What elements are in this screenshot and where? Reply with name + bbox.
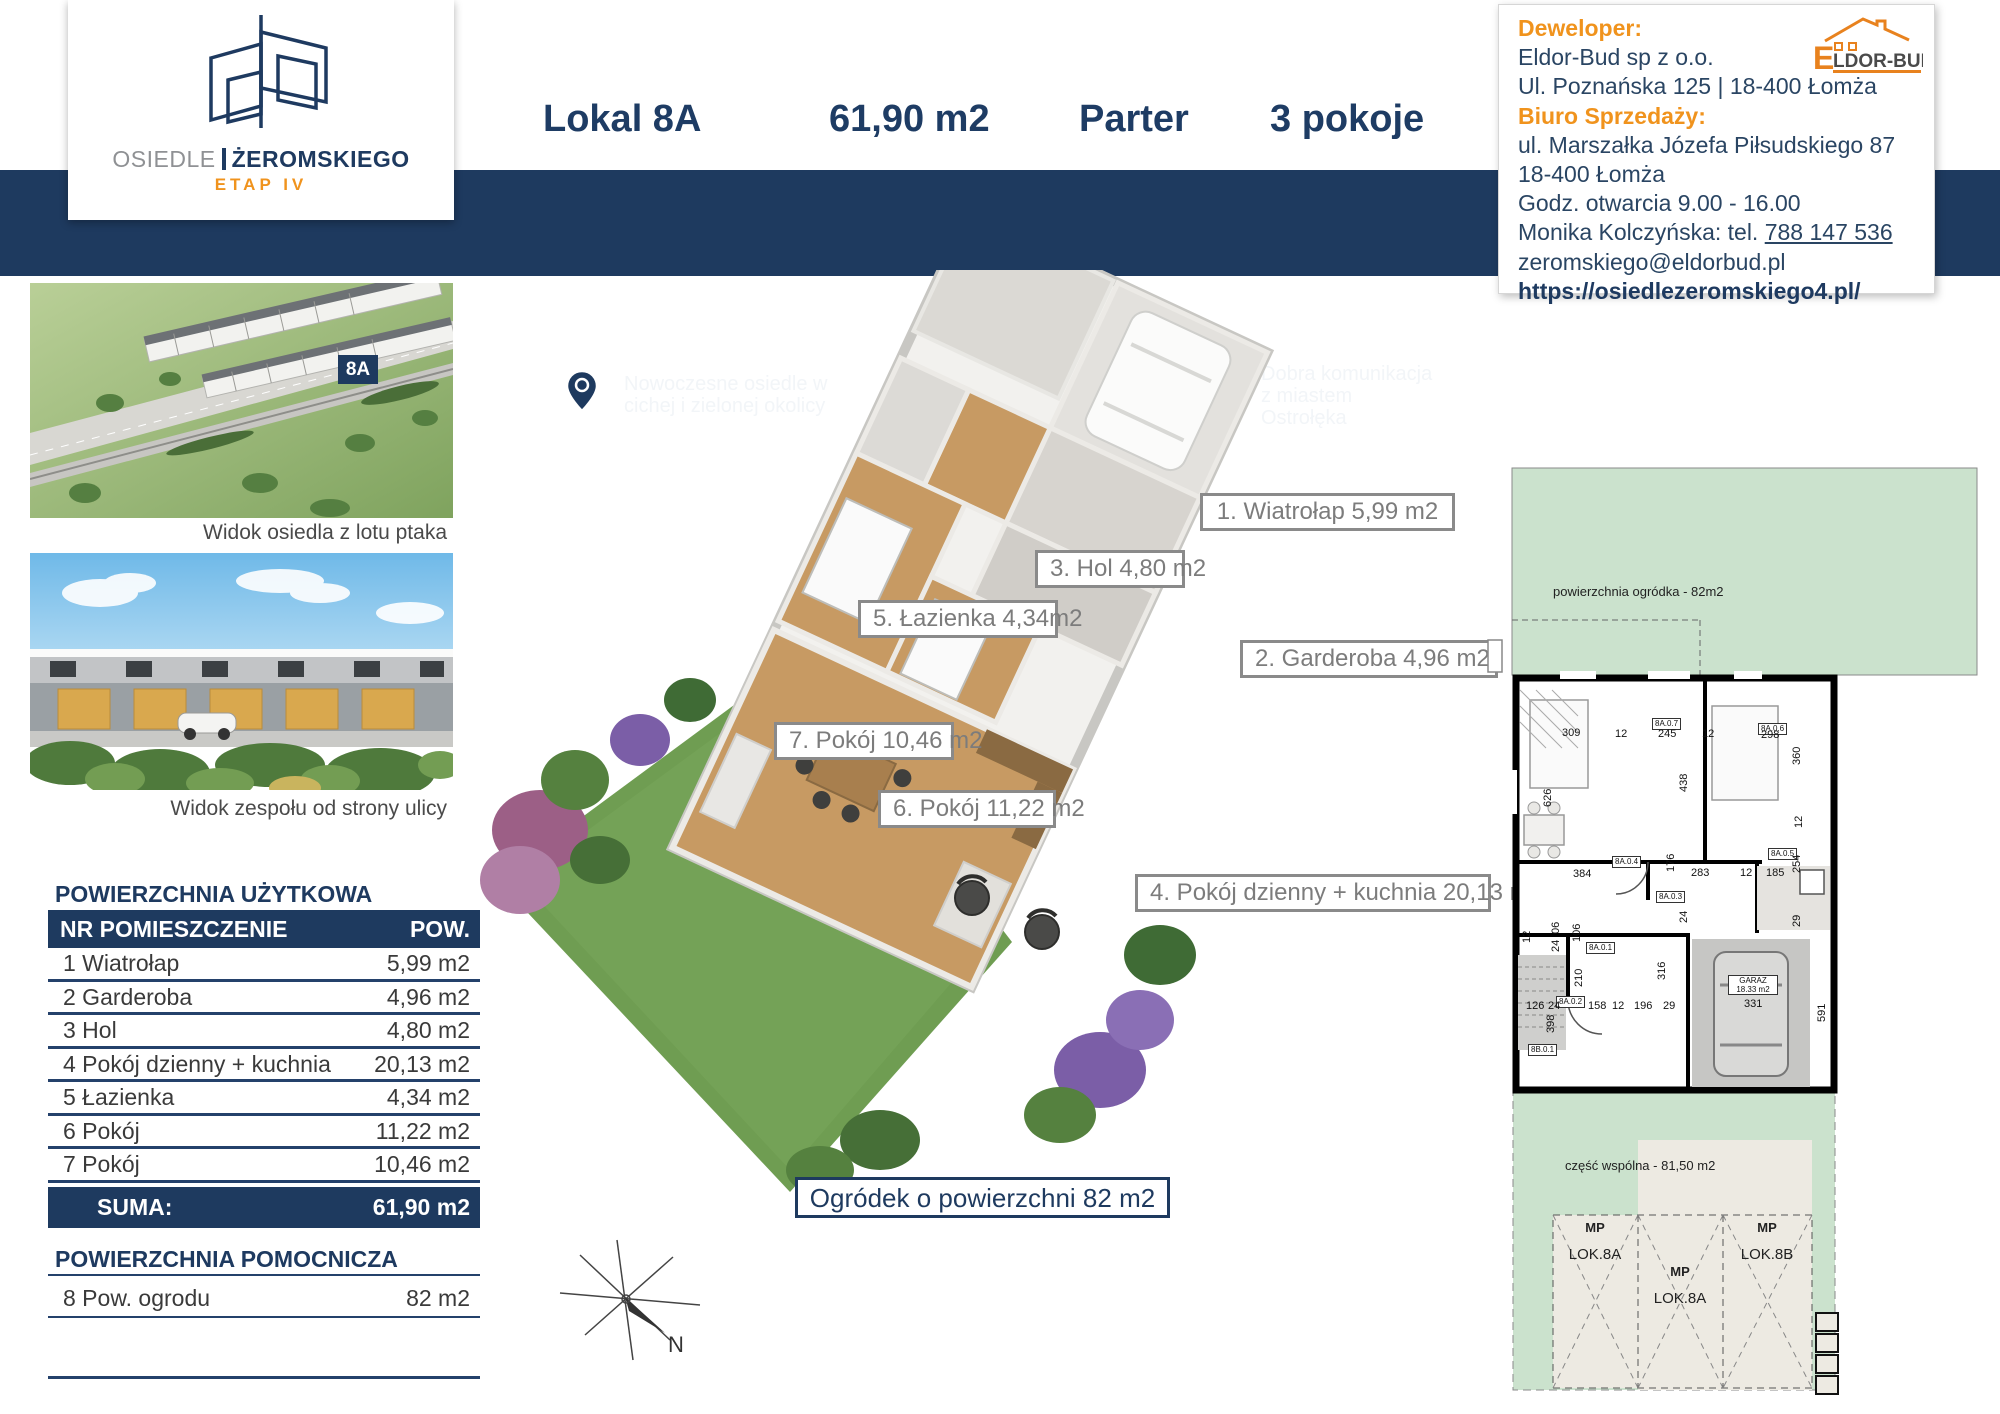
room-code-chip: 8A.0.3 <box>1656 891 1685 903</box>
dim-label: 158 <box>1588 1000 1606 1012</box>
dim-label: 196 <box>1634 1000 1652 1012</box>
dim-label: 210 <box>1573 969 1585 987</box>
dim-label: 316 <box>1656 962 1668 980</box>
dim-label: 176 <box>1665 854 1677 872</box>
phone-link[interactable]: 788 147 536 <box>1765 219 1893 245</box>
page-title-rooms: 3 pokoje <box>1270 98 1424 141</box>
dim-label: 12 <box>1702 728 1714 740</box>
room-label: 2. Garderoba 4,96 m2 <box>1240 640 1498 678</box>
dim-label: 24 <box>1548 1000 1560 1012</box>
dim-label: 24 <box>1678 911 1690 923</box>
estate-logo-icon <box>68 10 454 140</box>
room-pow: 4,34 m2 <box>387 1082 470 1113</box>
table-row: 7 Pokój10,46 m2 <box>48 1149 480 1183</box>
storage-box <box>1815 1375 1839 1395</box>
room-pow: 5,99 m2 <box>387 948 470 979</box>
dim-label: 06 <box>1550 922 1562 934</box>
room-label: 7. Pokój 10,46 m2 <box>774 722 954 760</box>
office-address-1: ul. Marszałka Józefa Piłsudskiego 87 <box>1518 131 1934 160</box>
room-label: 3. Hol 4,80 m2 <box>1035 550 1185 588</box>
contact-line: Monika Kolczyńska: tel. 788 147 536 <box>1518 218 1934 247</box>
table-row: 6 Pokój11,22 m2 <box>48 1116 480 1150</box>
logo-divider <box>222 148 226 170</box>
parking-stall-label: MP <box>1555 1220 1635 1235</box>
room-name: 3 Hol <box>63 1015 117 1046</box>
dim-label: 384 <box>1573 868 1591 880</box>
contact-name: Monika Kolczyńska: tel. <box>1518 219 1765 245</box>
logo-title-navy: ŻEROMSKIEGO <box>232 146 410 172</box>
aux-pow: 82 m2 <box>406 1276 470 1316</box>
brand-e: E <box>1813 40 1834 75</box>
divider <box>48 1376 480 1379</box>
aux-row: 8 Pow. ogrodu 82 m2 <box>48 1274 480 1318</box>
dim-label: 29 <box>1663 1000 1675 1012</box>
dim-label: 283 <box>1691 867 1709 879</box>
logo-title-gray: OSIEDLE <box>112 146 215 172</box>
garden-zone-label: powierzchnia ogródka - 82m2 <box>1553 584 1724 599</box>
parking-stall-label: LOK.8A <box>1635 1290 1725 1307</box>
unit-badge: 8A <box>338 355 378 384</box>
dim-label: 309 <box>1562 727 1580 739</box>
room-code-chip: 8A.0.4 <box>1612 856 1641 868</box>
room-code-chip: 8A.0.2 <box>1556 996 1585 1008</box>
garage-area: 18.33 m2 <box>1736 985 1769 994</box>
col-header-pow: POW. <box>410 910 470 948</box>
dim-label: 12 <box>1615 728 1627 740</box>
logo-etap: ETAP IV <box>68 175 454 195</box>
suma-value: 61,90 m2 <box>373 1187 470 1228</box>
garden-area-label: Ogródek o powierzchni 82 m2 <box>795 1177 1170 1218</box>
dim-label: 126 <box>1526 1000 1544 1012</box>
dim-label: 438 <box>1678 774 1690 792</box>
parking-stall-label: MP <box>1640 1264 1720 1279</box>
dim-label: 298 <box>1761 729 1779 741</box>
logo-card: OSIEDLEŻEROMSKIEGO ETAP IV <box>68 0 454 220</box>
aux-name: 8 Pow. ogrodu <box>63 1276 210 1316</box>
dim-label: 12 <box>1793 816 1805 828</box>
room-pow: 4,96 m2 <box>387 982 470 1013</box>
dim-label: 12 <box>1612 1000 1624 1012</box>
room-name: 4 Pokój dzienny + kuchnia <box>63 1049 331 1080</box>
street-photo <box>30 553 453 790</box>
room-label: 6. Pokój 11,22 m2 <box>878 790 1056 828</box>
room-pow: 4,80 m2 <box>387 1015 470 1046</box>
dim-label: 331 <box>1744 998 1762 1010</box>
area-table-title: POWIERZCHNIA UŻYTKOWA <box>55 881 372 908</box>
dim-label: 185 <box>1766 867 1784 879</box>
office-label: Biuro Sprzedaży: <box>1518 102 1934 131</box>
dim-label: 106 <box>1571 924 1583 942</box>
developer-card: Deweloper: Eldor-Bud sp z o.o. Ul. Pozna… <box>1498 4 1935 294</box>
room-code-chip: 8B.0.1 <box>1528 1044 1557 1056</box>
suma-label: SUMA: <box>97 1187 172 1228</box>
page-title-floor: Parter <box>1079 98 1189 141</box>
website-link[interactable]: https://osiedlezeromskiego4.pl/ <box>1518 277 1934 306</box>
dim-label: 29 <box>1791 915 1803 927</box>
logo-title: OSIEDLEŻEROMSKIEGO <box>68 146 454 173</box>
email-link[interactable]: zeromskiego@eldorbud.pl <box>1518 248 1934 277</box>
photo-caption: Widok osiedla z lotu ptaka <box>30 521 453 545</box>
room-code-chip: 8A.0.1 <box>1586 942 1615 954</box>
dim-label: 254 <box>1791 855 1803 873</box>
compass-n-label: N <box>668 1332 684 1358</box>
office-hours: Godz. otwarcia 9.00 - 16.00 <box>1518 189 1934 218</box>
table-row: 2 Garderoba4,96 m2 <box>48 982 480 1016</box>
table-row: 3 Hol4,80 m2 <box>48 1015 480 1049</box>
table-row: 4 Pokój dzienny + kuchnia20,13 m2 <box>48 1049 480 1083</box>
dim-label: 12 <box>1740 867 1752 879</box>
dim-label: 360 <box>1791 747 1803 765</box>
garage-label: GARAZ 18.33 m2 <box>1728 975 1778 995</box>
dim-label: 398 <box>1545 1015 1557 1033</box>
table-row: 1 Wiatrołap5,99 m2 <box>48 948 480 982</box>
dim-label: 245 <box>1658 728 1676 740</box>
room-name: 1 Wiatrołap <box>63 948 179 979</box>
aux-table-title: POWIERZCHNIA POMOCNICZA <box>55 1246 398 1273</box>
dim-label: 591 <box>1816 1004 1828 1022</box>
storage-box <box>1815 1333 1839 1353</box>
suma-row: SUMA: 61,90 m2 <box>48 1187 480 1228</box>
room-name: 7 Pokój <box>63 1149 140 1180</box>
room-label: 1. Wiatrołap 5,99 m2 <box>1200 493 1455 531</box>
room-name: 5 Łazienka <box>63 1082 174 1113</box>
office-address-2: 18-400 Łomża <box>1518 160 1934 189</box>
floorplan-3d-render <box>470 270 1510 1220</box>
parking-stall-label: LOK.8B <box>1722 1246 1812 1263</box>
parking-stall-label: MP <box>1727 1220 1807 1235</box>
common-zone-label: część wspólna - 81,50 m2 <box>1565 1158 1715 1173</box>
page: Nowoczesne osiedle w cichej i zielonej o… <box>0 0 2000 1414</box>
room-name: 6 Pokój <box>63 1116 140 1147</box>
page-title-lokal: Lokal 8A <box>543 98 701 141</box>
room-label: 5. Łazienka 4,34m2 <box>858 600 1058 638</box>
room-pow: 20,13 m2 <box>374 1049 470 1080</box>
storage-box <box>1815 1354 1839 1374</box>
dim-label: 12 <box>1521 931 1533 943</box>
parking-stall-label: LOK.8A <box>1550 1246 1640 1263</box>
table-header-row: NR POMIESZCZENIE POW. <box>48 910 480 948</box>
aerial-photo: 8A <box>30 283 453 518</box>
dim-label: 626 <box>1542 789 1554 807</box>
table-row: 5 Łazienka4,34 m2 <box>48 1082 480 1116</box>
room-pow: 11,22 m2 <box>376 1116 470 1147</box>
room-pow: 10,46 m2 <box>374 1149 470 1180</box>
room-name: 2 Garderoba <box>63 982 192 1013</box>
brand-rest: LDOR-BUD <box>1833 51 1923 72</box>
area-table: NR POMIESZCZENIE POW. 1 Wiatrołap5,99 m2… <box>48 910 480 1228</box>
room-label: 4. Pokój dzienny + kuchnia 20,13 m2 <box>1135 874 1491 912</box>
garage-name: GARAZ <box>1739 976 1767 985</box>
page-title-area: 61,90 m2 <box>829 98 990 141</box>
photo-caption: Widok zespołu od strony ulicy <box>30 797 453 821</box>
col-header-name: NR POMIESZCZENIE <box>60 910 287 948</box>
eldorbud-logo: E LDOR-BUD <box>1811 13 1923 82</box>
storage-box <box>1815 1312 1839 1332</box>
dim-label: 24 <box>1550 940 1562 952</box>
